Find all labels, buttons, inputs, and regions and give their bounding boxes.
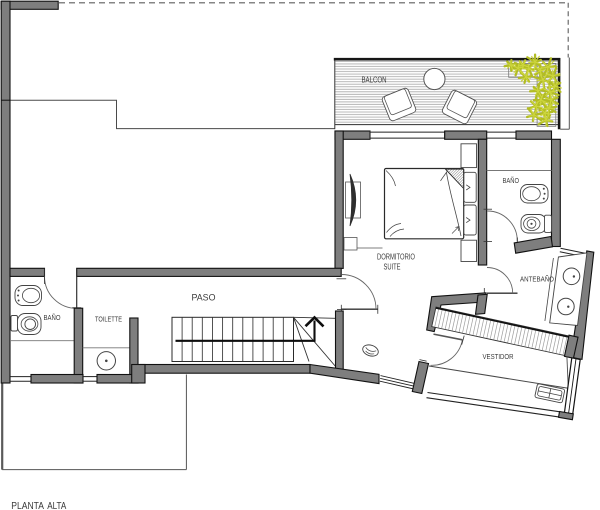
svg-text:BAÑO: BAÑO	[44, 313, 61, 322]
svg-text:PASO: PASO	[192, 292, 216, 303]
svg-text:BALCON: BALCON	[362, 75, 387, 84]
svg-text:ANTEBAÑO: ANTEBAÑO	[520, 274, 554, 283]
svg-text:TOILETTE: TOILETTE	[95, 314, 122, 323]
svg-text:PLANTA: PLANTA	[11, 501, 44, 510]
svg-text:BAÑO: BAÑO	[503, 176, 520, 185]
svg-text:VESTIDOR: VESTIDOR	[483, 352, 514, 361]
svg-text:ALTA: ALTA	[47, 501, 66, 510]
svg-text:SUITE: SUITE	[384, 263, 401, 272]
svg-text:DORMITORIO: DORMITORIO	[377, 252, 415, 261]
